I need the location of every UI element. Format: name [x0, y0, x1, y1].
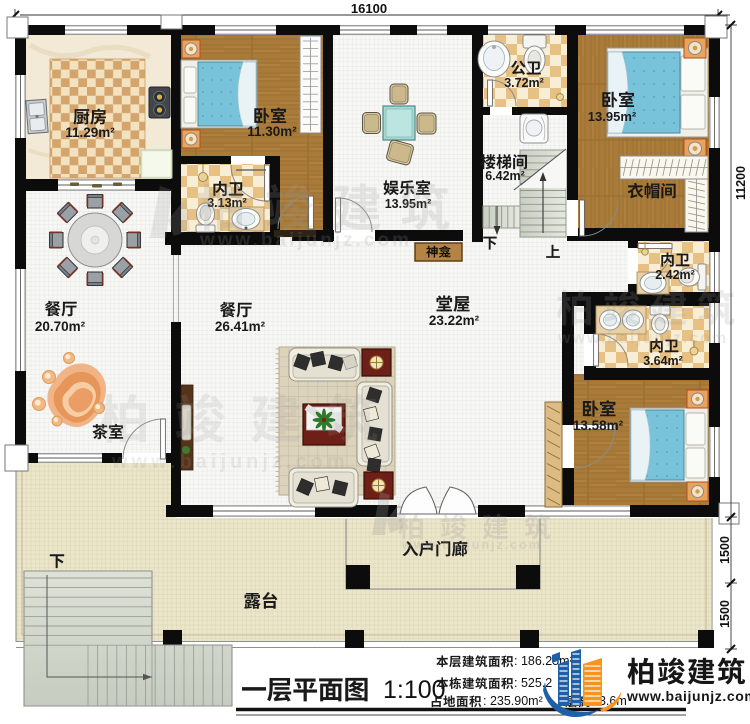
svg-text:www.baijunjz.com: www.baijunjz.com: [199, 230, 412, 251]
svg-text:1500: 1500: [718, 536, 732, 564]
svg-text:1500: 1500: [718, 600, 732, 628]
svg-text:www.baijunjz.com: www.baijunjz.com: [111, 451, 349, 473]
svg-text:3.64m²: 3.64m²: [643, 354, 683, 368]
svg-text:: 235.90m²: : 235.90m²: [483, 694, 543, 708]
svg-text:13.95m²: 13.95m²: [588, 109, 637, 124]
svg-text:www.baijunjz.com: www.baijunjz.com: [626, 688, 750, 704]
svg-text:www.baijunjz.com: www.baijunjz.com: [401, 538, 542, 552]
svg-text:20.70m²: 20.70m²: [35, 319, 86, 334]
svg-text:13.58m²: 13.58m²: [573, 418, 624, 433]
svg-text:11.30m²: 11.30m²: [247, 124, 297, 139]
svg-text:: 525.2: : 525.2: [514, 676, 552, 690]
svg-text:6.42m²: 6.42m²: [485, 169, 525, 183]
svg-text:23.22m²: 23.22m²: [429, 313, 480, 328]
svg-text:3.72m²: 3.72m²: [504, 76, 544, 90]
svg-text:16100: 16100: [351, 1, 387, 16]
svg-text:www.baijunjz.com: www.baijunjz.com: [557, 330, 728, 347]
svg-text:26.41m²: 26.41m²: [215, 319, 266, 334]
svg-text:11200: 11200: [734, 166, 748, 200]
svg-text:2.42m²: 2.42m²: [655, 268, 695, 282]
svg-text:11.29m²: 11.29m²: [65, 125, 115, 140]
